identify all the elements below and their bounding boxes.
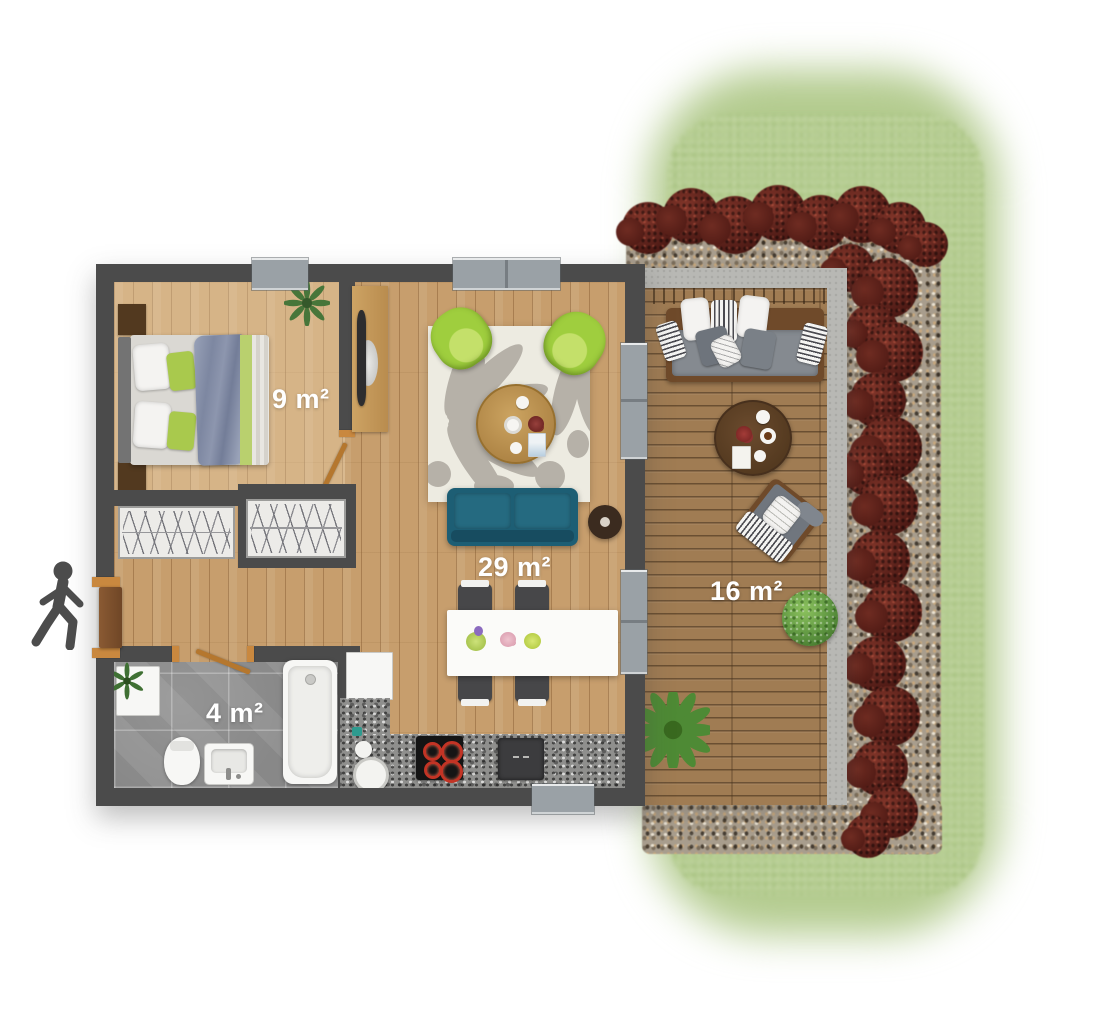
coffee	[764, 432, 772, 440]
book	[732, 446, 751, 469]
hedge-bush	[850, 636, 906, 692]
hedge-bush	[850, 530, 910, 590]
flower-decoration	[736, 426, 752, 442]
bedroom-nightstand	[118, 461, 146, 492]
hedge-bush	[858, 475, 918, 535]
entrance-door-frame	[92, 648, 120, 658]
dining-table	[447, 610, 618, 676]
outer-wall-top	[96, 264, 645, 282]
outdoor-coffee-table	[714, 400, 792, 476]
dining-chair	[515, 672, 549, 702]
kitchen-dish	[355, 741, 372, 758]
dining-chair	[458, 672, 492, 702]
bedroom-window	[252, 258, 308, 290]
table-salad-plate	[524, 633, 541, 649]
apartment: 9 m²	[96, 264, 645, 806]
bed-pillow	[132, 343, 172, 392]
terrace-border-top	[643, 268, 847, 288]
closet-wardrobe	[246, 499, 346, 558]
terrace-area-label: 16 m²	[710, 576, 783, 607]
living-sofa	[447, 488, 578, 546]
bedroom-nightstand	[118, 304, 146, 335]
kitchen-sink	[498, 738, 544, 780]
toilet	[164, 737, 200, 785]
door-frame	[247, 646, 254, 662]
cooktop	[416, 736, 463, 780]
kitchen-exterior-door	[532, 784, 594, 814]
entrance-door	[99, 587, 122, 648]
bed-duvet	[252, 335, 269, 465]
outdoor-grey-pillow	[739, 328, 777, 371]
saucer	[754, 450, 766, 462]
hedge-bush	[862, 582, 922, 642]
bathroom-sink	[204, 743, 254, 785]
table-purple-flower	[474, 626, 483, 636]
side-table-lamp	[588, 505, 622, 539]
bathtub	[283, 660, 337, 784]
coffee-table	[476, 384, 556, 464]
walking-person-icon	[30, 560, 88, 650]
floor-plan: 16 m²	[0, 0, 1110, 1029]
bed-accent-pillow	[166, 411, 196, 451]
outer-wall-left	[96, 264, 114, 806]
kitchen-teal-accessory	[352, 727, 362, 736]
living-window	[453, 258, 560, 290]
table-pink-flowers	[500, 632, 516, 647]
bowl	[504, 416, 522, 434]
hedge-bush	[860, 686, 920, 746]
hedge-bush	[903, 222, 948, 267]
bathroom-top-wall	[114, 646, 172, 662]
bed-pillow	[132, 401, 171, 449]
fridge	[346, 652, 393, 700]
flower-decoration	[528, 416, 544, 432]
hallway-wardrobe	[118, 506, 235, 559]
bathroom-area-label: 4 m²	[206, 698, 264, 729]
bed-accent-pillow	[166, 350, 197, 391]
door-frame	[172, 646, 179, 662]
terrace-window	[621, 343, 647, 459]
hedge-bush	[846, 814, 890, 858]
terrace-leafy-plant	[636, 692, 710, 768]
cup	[516, 396, 529, 409]
tv	[357, 310, 366, 406]
outdoor-sofa	[660, 292, 830, 388]
bed-headboard	[118, 337, 131, 463]
terrace-border-right	[827, 268, 847, 805]
terrace-door	[621, 570, 647, 674]
entrance-door-frame	[92, 577, 120, 587]
bedroom-area-label: 9 m²	[272, 384, 330, 415]
notebook	[528, 433, 546, 457]
cup	[510, 442, 522, 454]
cup	[756, 410, 770, 424]
bed	[118, 335, 269, 465]
living-area-label: 29 m²	[478, 552, 551, 583]
terrace-bush-plant	[782, 590, 838, 646]
